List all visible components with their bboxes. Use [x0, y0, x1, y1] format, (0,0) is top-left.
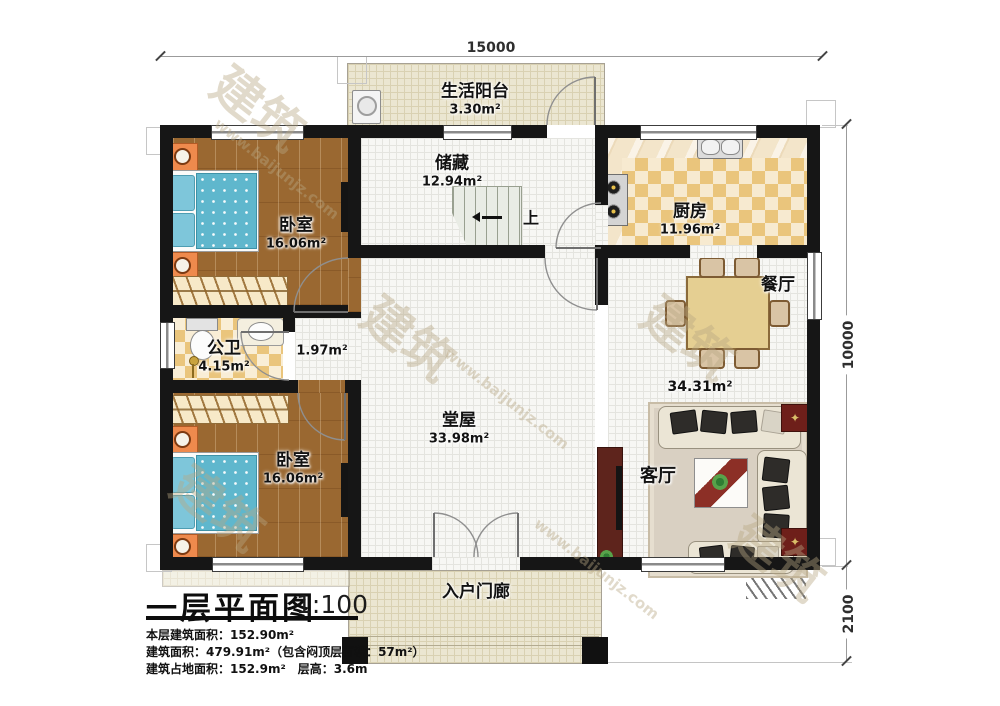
dining-label: 餐厅 — [761, 274, 795, 296]
bedroom-bottom-label: 卧室 16.06m² — [263, 450, 323, 489]
room-name: 生活阳台 — [441, 81, 509, 103]
hall-label: 堂屋 33.98m² — [429, 410, 489, 449]
stat-floor-area: 本层建筑面积：152.90m² — [146, 626, 294, 643]
door-arc — [294, 258, 348, 312]
room-name: 入户门廊 — [442, 581, 510, 603]
floor-plan-canvas: ✦ ✦ 生活阳台 3.30m² 储藏 12.94m² 厨房 11.96m² 卧室… — [0, 0, 1000, 706]
room-area: 33.98m² — [429, 432, 489, 449]
bathroom-label: 公卫 4.15m² — [198, 338, 249, 377]
room-area: 11.96m² — [660, 223, 720, 240]
living-label: 客厅 — [640, 464, 676, 487]
door-arc — [474, 513, 518, 557]
door-arc — [556, 203, 601, 248]
room-area: 34.31m² — [667, 378, 732, 396]
storage-label: 储藏 12.94m² — [422, 153, 482, 192]
plan-title: 一层平面图 — [146, 583, 316, 628]
stairs-up-label: 上 — [523, 209, 539, 230]
room-name: 厨房 — [673, 201, 707, 223]
room-area: 1.97m² — [296, 344, 347, 361]
title-underline — [146, 616, 358, 620]
door-arc — [434, 513, 478, 557]
door-arc — [545, 258, 597, 310]
plan-scale: 1:100 — [296, 590, 368, 619]
balcony-label: 生活阳台 3.30m² — [441, 81, 509, 120]
room-name: 公卫 — [207, 338, 241, 360]
room-name: 客厅 — [640, 464, 676, 487]
stat-total-area: 建筑面积：479.91m²（包含闷顶层面积：57m²） — [146, 643, 425, 660]
room-name: 储藏 — [435, 153, 469, 175]
room-area: 3.30m² — [449, 103, 500, 120]
door-arc — [547, 77, 595, 125]
stairs-up-text: 上 — [523, 209, 539, 230]
door-arc — [298, 393, 345, 440]
stat-footprint-height: 建筑占地面积：152.9m² 层高：3.6m — [146, 660, 367, 677]
bedroom-top-label: 卧室 16.06m² — [266, 215, 326, 254]
room-name: 堂屋 — [442, 410, 476, 432]
room-name: 卧室 — [279, 215, 313, 237]
room-area: 16.06m² — [266, 237, 326, 254]
living-dining-area-label: 34.31m² — [667, 378, 732, 396]
room-area: 4.15m² — [198, 360, 249, 377]
room-area: 12.94m² — [422, 175, 482, 192]
hallway-area-label: 1.97m² — [296, 344, 347, 361]
room-name: 餐厅 — [761, 274, 795, 296]
room-name: 卧室 — [276, 450, 310, 472]
porch-label: 入户门廊 — [442, 581, 510, 603]
room-area: 16.06m² — [263, 472, 323, 489]
kitchen-label: 厨房 11.96m² — [660, 201, 720, 240]
